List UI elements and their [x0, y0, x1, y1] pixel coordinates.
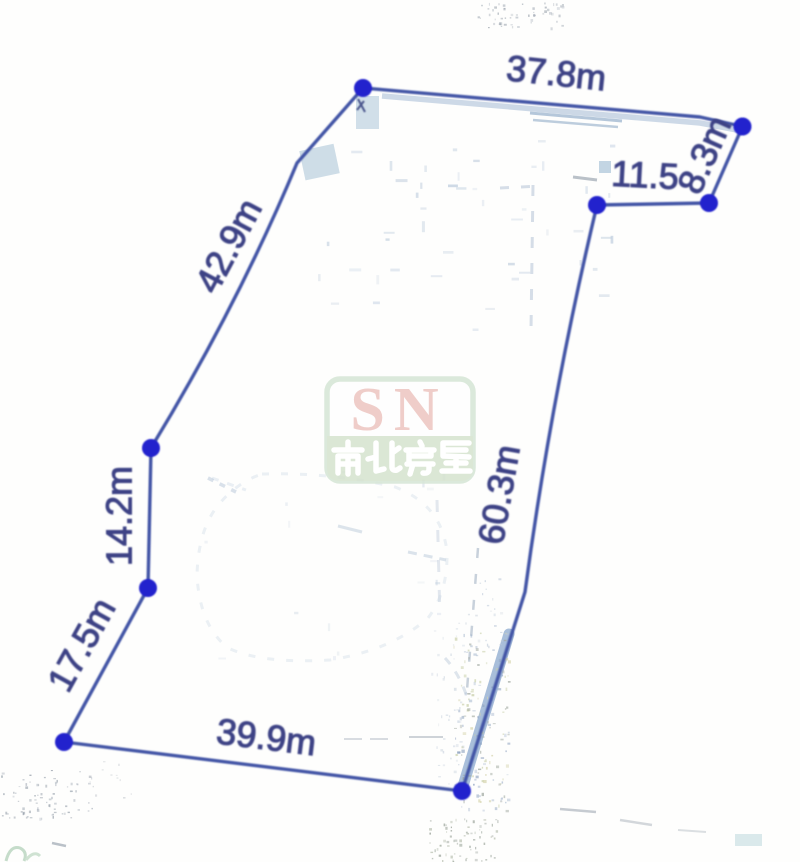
svg-text:14.2m: 14.2m: [99, 466, 140, 566]
svg-text:11.5: 11.5: [610, 153, 679, 197]
svg-text:SN: SN: [350, 376, 447, 444]
